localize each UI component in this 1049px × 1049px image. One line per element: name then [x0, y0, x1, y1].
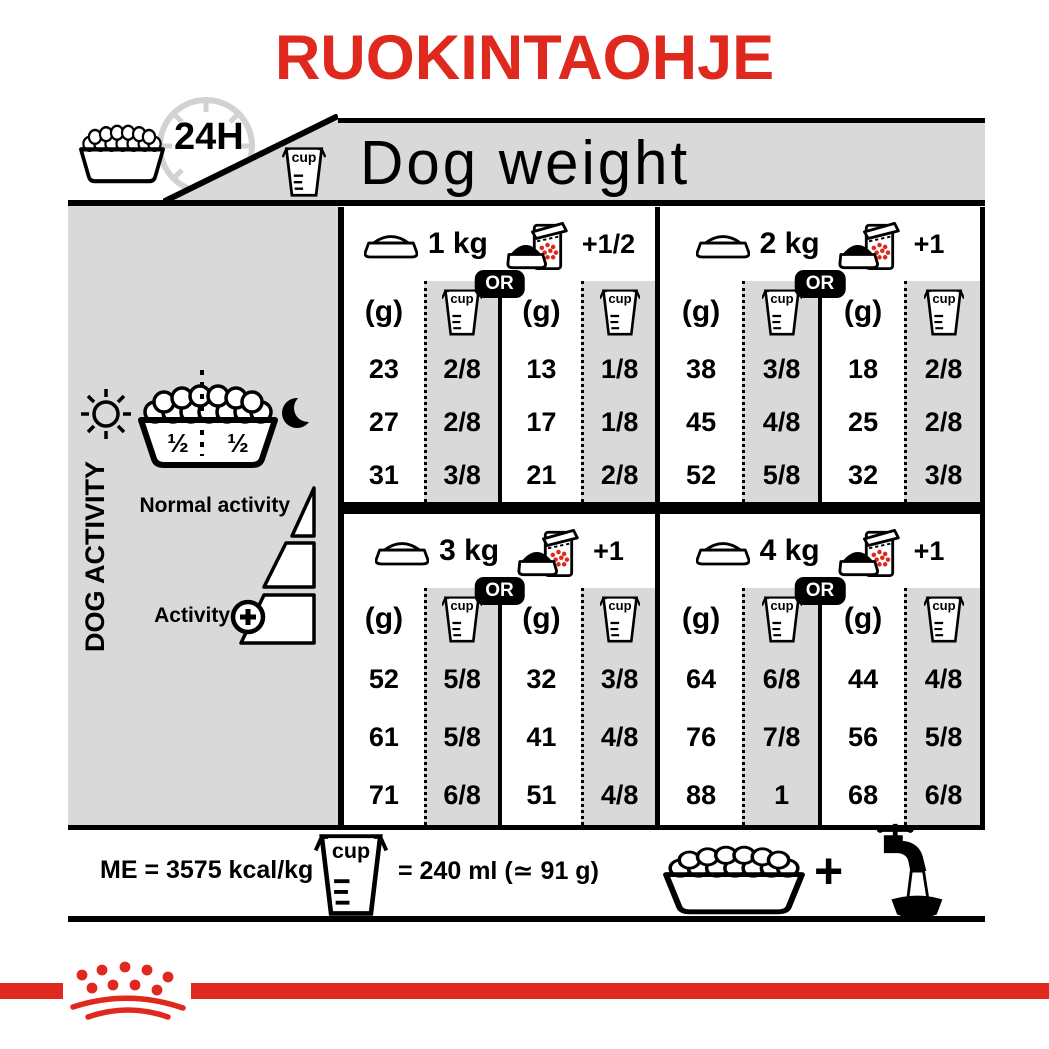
gram-value-cell: 52 [660, 449, 742, 502]
svg-text:cup: cup [608, 597, 631, 612]
cup-value-cell: 2/8 [427, 396, 498, 449]
cup-column: cup 2/8 2/8 3/8 [904, 281, 980, 502]
cup-value-cell: 4/8 [584, 708, 655, 766]
high-activity-label: Activity [135, 604, 230, 628]
grams-column: (g) 38 45 52 [660, 281, 742, 502]
cup-value-cell: 4/8 [907, 650, 980, 708]
measuring-cup-icon: cup [282, 146, 326, 198]
gram-value-cell: 13 [502, 343, 582, 396]
bowl-plus-bag-icon [506, 218, 572, 274]
svg-text:cup: cup [770, 290, 793, 305]
gram-value-cell: 64 [660, 650, 742, 708]
cup-value-cell: 6/8 [427, 767, 498, 825]
measuring-cup-icon: cup [312, 832, 390, 918]
activity-level-1-icon [290, 486, 316, 538]
bowl-plus-bag-icon [838, 525, 904, 581]
svg-text:cup: cup [292, 149, 317, 165]
extra-portion-label: +1 [914, 229, 945, 260]
grams-column: (g) 44 56 68 [822, 588, 904, 825]
grams-header: (g) [660, 588, 742, 650]
or-badge: OR [795, 270, 846, 298]
plus-sign: + [814, 842, 843, 900]
svg-text:cup: cup [332, 839, 370, 863]
gram-value-cell: 45 [660, 396, 742, 449]
measuring-cup-icon: cup [924, 288, 964, 337]
svg-text:cup: cup [451, 290, 474, 305]
gram-value-cell: 23 [344, 343, 424, 396]
cup-column: cup 3/8 4/8 4/8 [581, 588, 655, 825]
cup-value-cell: 4/8 [745, 396, 818, 449]
svg-text:cup: cup [608, 290, 631, 305]
activity-level-2-icon [262, 541, 317, 589]
metabolizable-energy-label: ME = 3575 kcal/kg [100, 856, 313, 885]
cup-column: cup 2/8 2/8 3/8 [424, 281, 498, 502]
gram-value-cell: 76 [660, 708, 742, 766]
cup-header: cup [907, 588, 980, 650]
bowl-only-columns: (g) 64 76 88 cup [660, 588, 818, 825]
gram-value-cell: 44 [822, 650, 904, 708]
or-badge: OR [474, 270, 525, 298]
cup-value-cell: 2/8 [907, 396, 980, 449]
footer-divider-line [68, 916, 985, 922]
weight-header: 4 kg +1 OR [660, 514, 980, 588]
half-half-bowl-icon: ½ ½ [133, 368, 283, 468]
cup-value-cell: 1 [745, 767, 818, 825]
grams-header: (g) [344, 281, 424, 343]
half-portion-left: ½ [167, 428, 189, 458]
gram-value-cell: 68 [822, 767, 904, 825]
cup-column: cup 1/8 1/8 2/8 [581, 281, 655, 502]
grams-column: (g) 64 76 88 [660, 588, 742, 825]
moon-icon [281, 390, 317, 436]
grams-header: (g) [344, 588, 424, 650]
dog-activity-sidebar: ½ ½ DOG ACTIVITY Normal activity Activit… [68, 206, 338, 830]
weight-header: 3 kg +1 OR [344, 514, 655, 588]
extra-portion-label: +1 [593, 536, 624, 567]
section-body: (g) 64 76 88 cup [660, 588, 980, 825]
dog-weight-header: Dog weight [338, 118, 985, 201]
brand-band-right [191, 983, 1049, 999]
cup-value-cell: 5/8 [745, 449, 818, 502]
cup-value-cell: 1/8 [584, 396, 655, 449]
weight-section: 2 kg +1 OR [660, 207, 985, 509]
cup-value-cell: 4/8 [584, 767, 655, 825]
dog-bowl-icon [696, 229, 750, 259]
weight-label: 1 kg [428, 227, 488, 261]
bowl-plus-bag-columns: (g) 44 56 68 cup [818, 588, 980, 825]
cup-value-cell: 2/8 [584, 449, 655, 502]
cup-column: cup 3/8 4/8 5/8 [742, 281, 818, 502]
weight-label: 2 kg [760, 227, 820, 261]
dog-bowl-icon [375, 536, 429, 566]
cup-value-cell: 3/8 [427, 449, 498, 502]
weight-header: 1 kg +1/2 OR [344, 207, 655, 281]
cup-value-cell: 6/8 [907, 767, 980, 825]
bowl-plus-bag-icon [517, 525, 583, 581]
cup-value-cell: 3/8 [584, 650, 655, 708]
gram-value-cell: 88 [660, 767, 742, 825]
crown-logo [64, 956, 192, 1022]
or-badge: OR [474, 577, 525, 605]
gram-value-cell: 31 [344, 449, 424, 502]
gram-value-cell: 41 [502, 708, 582, 766]
or-badge: OR [795, 577, 846, 605]
kibble-bowl-icon [76, 112, 168, 184]
weight-section: 3 kg +1 OR [338, 509, 660, 830]
grams-header: (g) [660, 281, 742, 343]
svg-text:cup: cup [932, 597, 955, 612]
sun-icon [78, 386, 134, 442]
plus-circle-icon [228, 597, 268, 637]
cup-value-cell: 2/8 [907, 343, 980, 396]
cup-column: cup 4/8 5/8 6/8 [904, 588, 980, 825]
half-portion-right: ½ [227, 428, 249, 458]
bowl-plus-bag-icon [838, 218, 904, 274]
cup-value-cell: 6/8 [745, 650, 818, 708]
grams-column: (g) 32 41 51 [502, 588, 582, 825]
cup-value-cell: 3/8 [745, 343, 818, 396]
grams-column: (g) 52 61 71 [344, 588, 424, 825]
dog-weight-label: Dog weight [338, 126, 690, 198]
brand-band-left [0, 983, 63, 999]
grams-column: (g) 18 25 32 [822, 281, 904, 502]
weight-header: 2 kg +1 OR [660, 207, 980, 281]
gram-value-cell: 21 [502, 449, 582, 502]
bowl-only-columns: (g) 52 61 71 cup [344, 588, 498, 825]
weight-section: 4 kg +1 OR [660, 509, 985, 830]
grams-column: (g) 13 17 21 [502, 281, 582, 502]
table-bottom-line [68, 825, 985, 830]
cup-value-cell: 2/8 [427, 343, 498, 396]
gram-value-cell: 52 [344, 650, 424, 708]
measuring-cup-icon: cup [762, 288, 802, 337]
gram-value-cell: 18 [822, 343, 904, 396]
section-body: (g) 52 61 71 cup [344, 588, 655, 825]
gram-value-cell: 17 [502, 396, 582, 449]
svg-text:cup: cup [451, 597, 474, 612]
kibble-bowl-icon [658, 831, 810, 915]
cup-header: cup [584, 588, 655, 650]
gram-value-cell: 51 [502, 767, 582, 825]
gram-value-cell: 25 [822, 396, 904, 449]
section-body: (g) 38 45 52 cup [660, 281, 980, 502]
extra-portion-label: +1/2 [582, 229, 635, 260]
svg-text:cup: cup [770, 597, 793, 612]
cup-header: cup [907, 281, 980, 343]
bowl-only-columns: (g) 38 45 52 cup [660, 281, 818, 502]
section-body: (g) 23 27 31 cup [344, 281, 655, 502]
cup-value-cell: 1/8 [584, 343, 655, 396]
cup-value-cell: 5/8 [907, 708, 980, 766]
measuring-cup-icon: cup [924, 595, 964, 644]
weight-label: 3 kg [439, 534, 499, 568]
bowl-plus-bag-columns: (g) 13 17 21 cup [498, 281, 656, 502]
feeding-guide-page: RUOKINTAOHJE 24H cup Dog w [0, 0, 1049, 1049]
cup-value-cell: 5/8 [427, 708, 498, 766]
cup-header: cup [584, 281, 655, 343]
bowl-only-columns: (g) 23 27 31 cup [344, 281, 498, 502]
extra-portion-label: +1 [914, 536, 945, 567]
cup-equivalence-label: = 240 ml (≃ 91 g) [398, 856, 599, 886]
weight-section: 1 kg +1/2 OR [338, 207, 660, 509]
dog-activity-label: DOG ACTIVITY [80, 480, 114, 652]
page-title: RUOKINTAOHJE [0, 22, 1049, 94]
measuring-cup-icon: cup [600, 288, 640, 337]
water-tap-icon [852, 822, 946, 922]
normal-activity-label: Normal activity [128, 494, 290, 518]
grams-column: (g) 23 27 31 [344, 281, 424, 502]
gram-value-cell: 71 [344, 767, 424, 825]
gram-value-cell: 32 [822, 449, 904, 502]
gram-value-cell: 61 [344, 708, 424, 766]
bowl-plus-bag-columns: (g) 32 41 51 cup [498, 588, 656, 825]
gram-value-cell: 32 [502, 650, 582, 708]
bowl-plus-bag-columns: (g) 18 25 32 cup [818, 281, 980, 502]
24h-label: 24H [174, 116, 244, 159]
measuring-cup-icon: cup [762, 595, 802, 644]
cup-column: cup 6/8 7/8 1 [742, 588, 818, 825]
dog-bowl-icon [364, 229, 418, 259]
svg-text:cup: cup [932, 290, 955, 305]
weight-label: 4 kg [760, 534, 820, 568]
cup-column: cup 5/8 5/8 6/8 [424, 588, 498, 825]
cup-value-cell: 7/8 [745, 708, 818, 766]
measuring-cup-icon: cup [600, 595, 640, 644]
cup-value-cell: 3/8 [907, 449, 980, 502]
gram-value-cell: 56 [822, 708, 904, 766]
gram-value-cell: 38 [660, 343, 742, 396]
gram-value-cell: 27 [344, 396, 424, 449]
dog-bowl-icon [696, 536, 750, 566]
cup-value-cell: 5/8 [427, 650, 498, 708]
